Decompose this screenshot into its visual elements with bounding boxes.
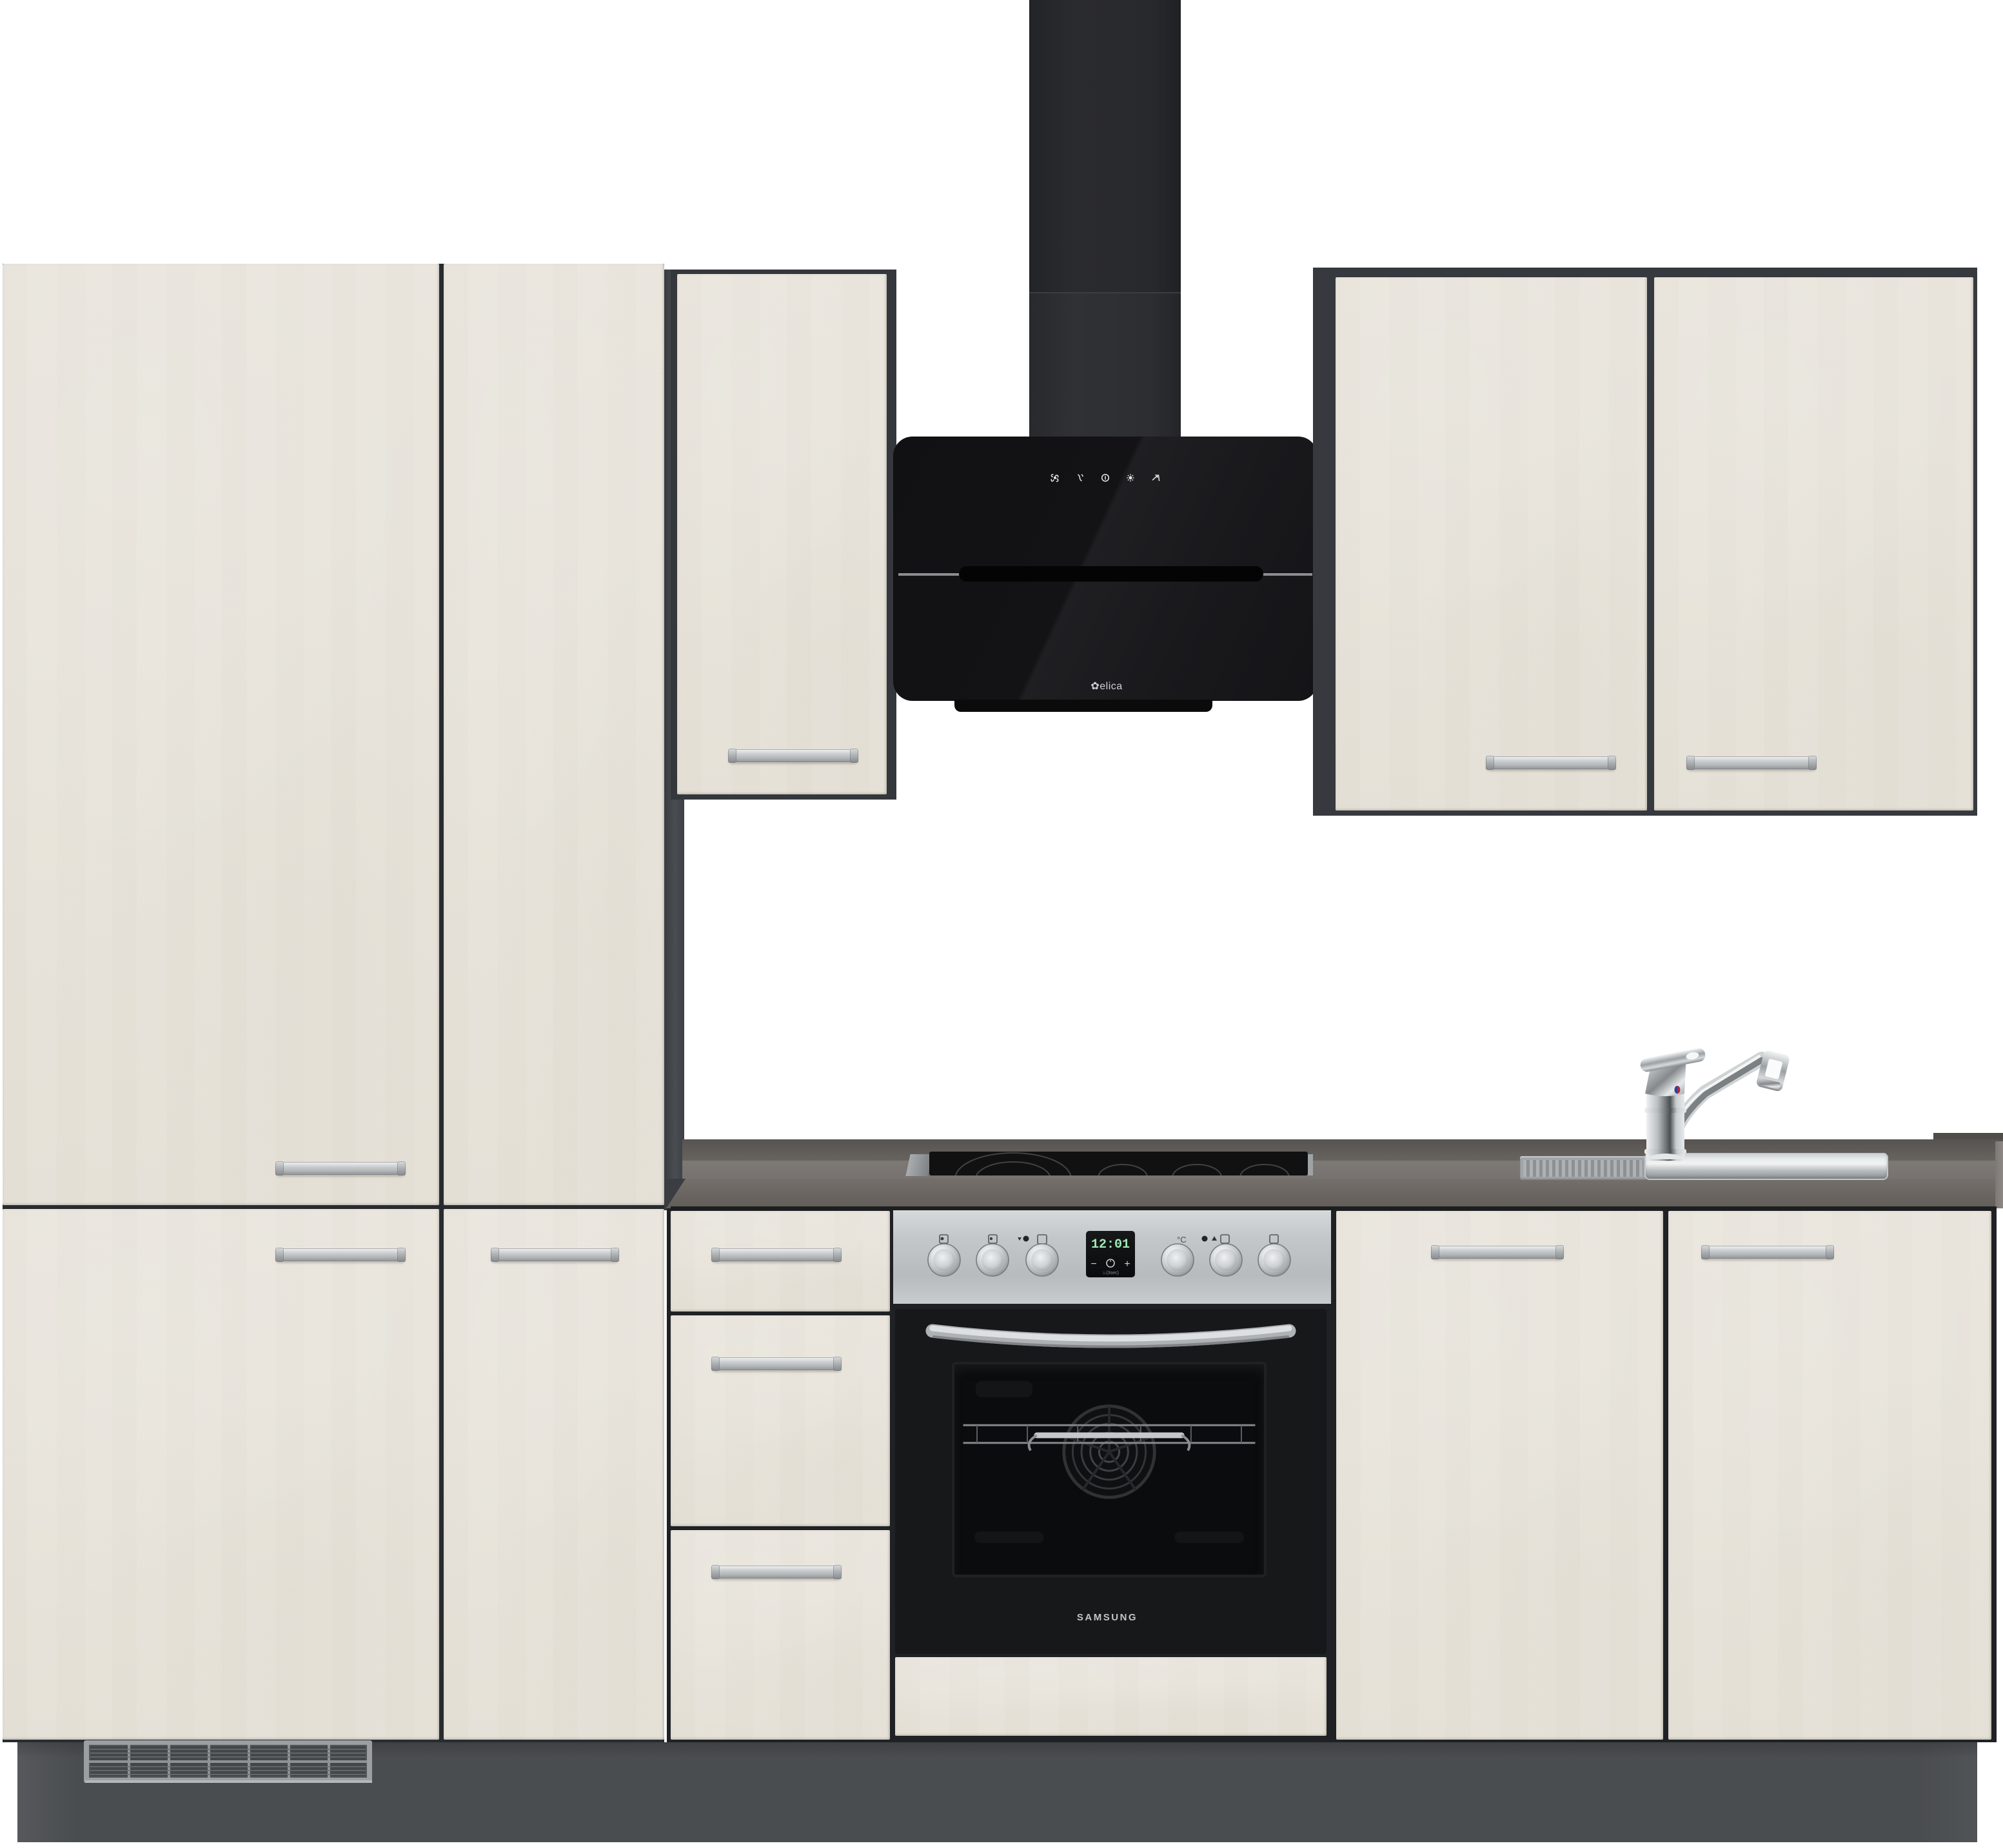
svg-text:12:01: 12:01 [1091,1237,1130,1252]
svg-text:°C: °C [1177,1235,1187,1244]
svg-text:+: + [1124,1259,1130,1270]
svg-text:−: − [1090,1259,1096,1270]
svg-text:♨(3sec): ♨(3sec) [1102,1270,1119,1275]
